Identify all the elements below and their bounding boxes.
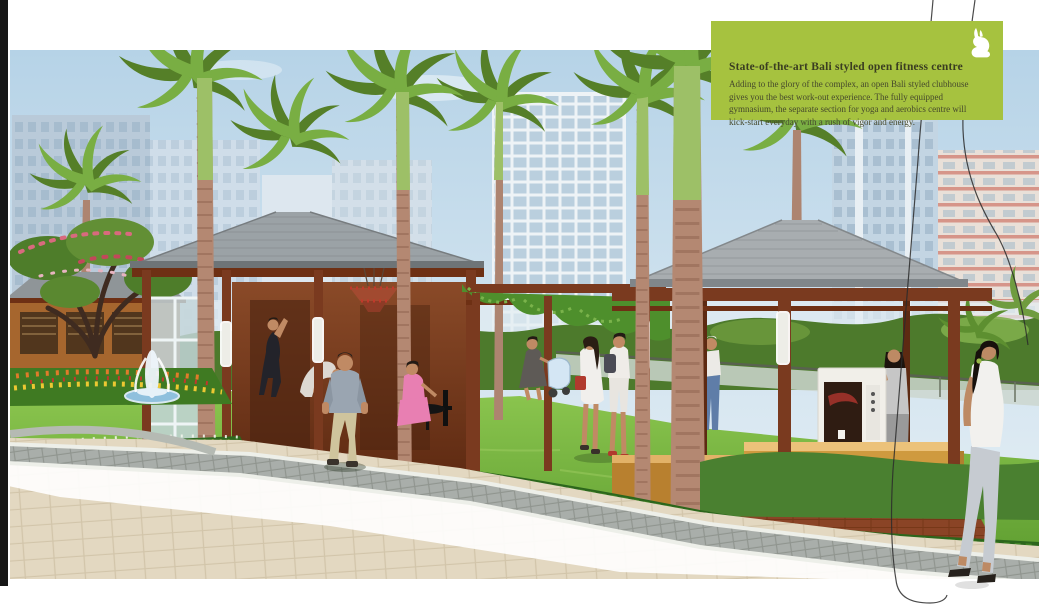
fitness-centre-info-card: State-of-the-art Bali styled open fitnes… [711,21,1003,120]
info-card-body: Adding to the glory of the complex, an o… [729,78,983,128]
left-flower-bed [8,368,232,406]
info-card-title: State-of-the-art Bali styled open fitnes… [729,61,983,73]
rabbit-icon [965,28,991,58]
brochure-page: State-of-the-art Bali styled open fitnes… [0,0,1039,610]
